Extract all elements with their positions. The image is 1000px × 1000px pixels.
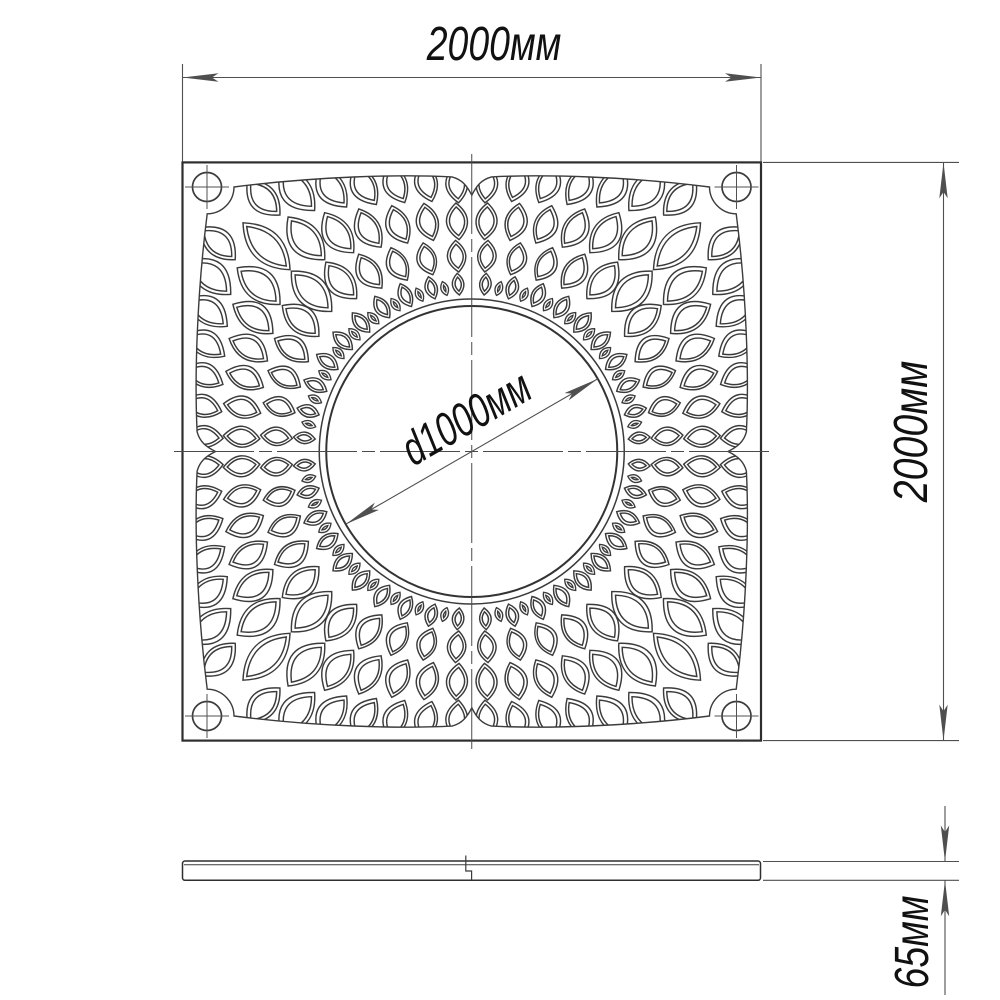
svg-text:65мм: 65мм xyxy=(886,896,940,989)
svg-text:2000мм: 2000мм xyxy=(884,361,938,503)
svg-text:2000мм: 2000мм xyxy=(426,18,561,72)
